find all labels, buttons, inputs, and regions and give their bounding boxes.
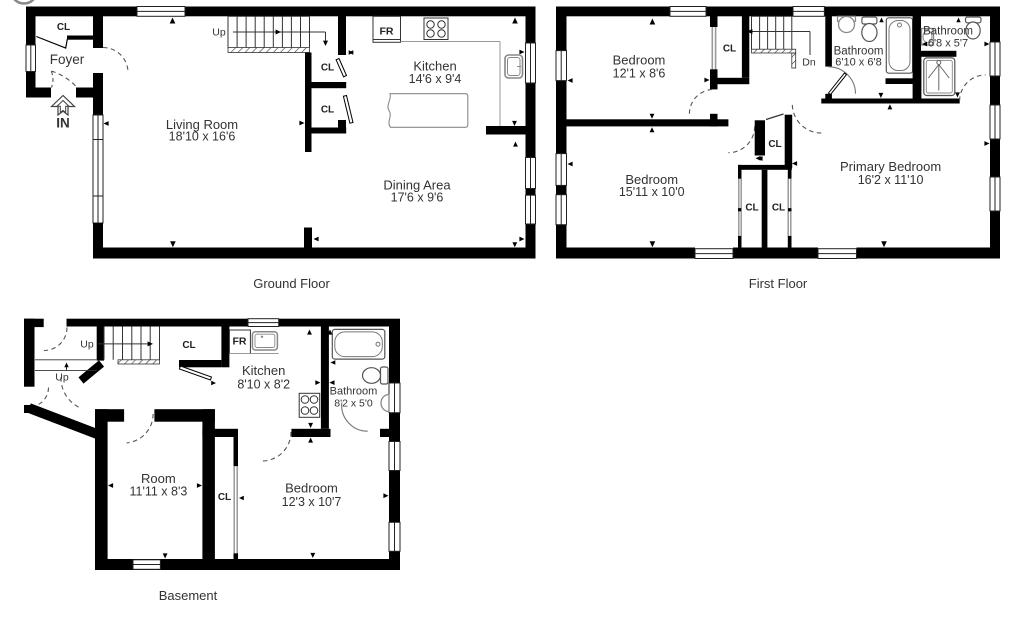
svg-text:11'11 x 8'3: 11'11 x 8'3 [129, 485, 187, 499]
svg-text:CL: CL [218, 492, 231, 503]
svg-text:Bathroom: Bathroom [923, 26, 973, 38]
svg-text:Bathroom: Bathroom [330, 386, 378, 398]
svg-text:Bedroom: Bedroom [613, 53, 666, 68]
svg-text:Kitchen: Kitchen [242, 363, 285, 378]
svg-text:CL: CL [772, 203, 785, 214]
svg-text:CL: CL [321, 63, 334, 74]
svg-text:12'1 x 8'6: 12'1 x 8'6 [613, 67, 666, 81]
svg-text:Foyer: Foyer [50, 52, 85, 67]
svg-text:Basement: Basement [159, 588, 218, 603]
svg-text:CL: CL [57, 22, 70, 33]
svg-text:Ground Floor: Ground Floor [253, 276, 330, 291]
svg-text:12'3 x 10'7: 12'3 x 10'7 [282, 495, 342, 509]
svg-text:CL: CL [745, 203, 758, 214]
svg-text:FR: FR [380, 25, 394, 37]
svg-text:Up: Up [212, 27, 226, 39]
svg-text:18'10 x 16'6: 18'10 x 16'6 [169, 130, 236, 144]
svg-text:Primary Bedroom: Primary Bedroom [840, 159, 941, 174]
svg-text:15'11 x 10'0: 15'11 x 10'0 [619, 185, 685, 199]
svg-text:First Floor: First Floor [749, 276, 808, 291]
svg-text:Bedroom: Bedroom [285, 481, 338, 496]
svg-text:IN: IN [56, 116, 70, 131]
svg-text:6'8 x 5'7: 6'8 x 5'7 [928, 38, 968, 50]
svg-text:CL: CL [768, 139, 781, 150]
svg-text:Dn: Dn [802, 57, 816, 69]
svg-text:14'6 x 9'4: 14'6 x 9'4 [409, 72, 462, 86]
svg-text:CL: CL [182, 340, 195, 351]
svg-text:Up: Up [80, 339, 94, 351]
svg-text:FR: FR [233, 336, 247, 348]
svg-text:16'2 x 11'10: 16'2 x 11'10 [858, 173, 924, 187]
svg-text:8'2 x 5'0: 8'2 x 5'0 [334, 398, 373, 410]
svg-text:Up: Up [55, 372, 69, 384]
svg-text:CL: CL [723, 44, 736, 55]
svg-text:17'6 x 9'6: 17'6 x 9'6 [391, 191, 444, 205]
svg-text:6'10 x 6'8: 6'10 x 6'8 [835, 57, 881, 69]
svg-text:CL: CL [321, 105, 334, 116]
svg-text:8'10 x 8'2: 8'10 x 8'2 [237, 378, 290, 392]
